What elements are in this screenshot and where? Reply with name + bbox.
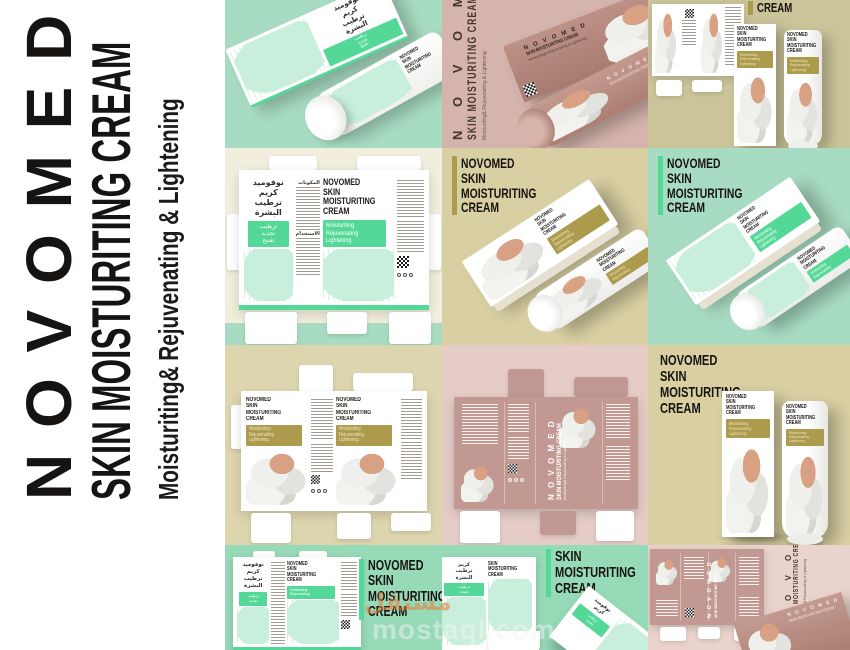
fine-print-text [401, 399, 422, 439]
dieline-flap [540, 511, 576, 535]
box-mockup-standing: NOVOMED SKIN MOISTURITING CREAM Moisturi… [734, 24, 776, 146]
benefits-badge: Moisturiting Rejuvenating Lightening [323, 220, 386, 247]
dieline-flap [299, 365, 333, 393]
fine-print-text [606, 404, 630, 440]
dieline-flap [508, 369, 544, 399]
dieline-flap [596, 511, 634, 541]
fine-print-text [397, 221, 424, 253]
tile-khaki-box-tube: NOVOMED SKIN MOISTURITING CREAM NOVOMED … [442, 148, 648, 345]
photo-woman [655, 7, 677, 73]
fine-print-text [311, 444, 332, 472]
tagline-text: Moisturiting& Rejuvenating & Lightening [153, 130, 185, 500]
illustration-woman [244, 249, 293, 301]
dieline-body: NOVOMED SKIN MOISTURITING CREAM Moisturi… [241, 391, 427, 511]
vertical-brand-line: N O V O M E D [450, 0, 465, 140]
dieline-flap [389, 312, 431, 344]
qr-code-icon [685, 9, 694, 18]
benefits-badge: Moisturiting Rejuvenating [287, 586, 336, 600]
dieline-flap [327, 312, 367, 334]
box-title: NOVOMED SKIN MOISTURITING CREAM [323, 178, 394, 217]
box-title: NOVOMED SKIN MOISTURITING CREAM [336, 397, 398, 423]
dieline-flap [269, 156, 317, 170]
rotated-brand-text: N O V O M E D SKIN MOISTURITING CREAM Mo… [547, 410, 567, 500]
front-panel: N O V O M E D SKIN MOISTURITING CREAM Mo… [535, 402, 599, 504]
photo-woman [787, 76, 819, 143]
box-title-line: CREAM [287, 578, 329, 583]
arabic-word: نوفوميد [244, 178, 293, 188]
heading-line: MOISTURITING [368, 590, 442, 605]
dieline-flap [692, 80, 722, 92]
box-title: SKIN MOISTURITING CREAM [488, 562, 532, 578]
social-icons [508, 478, 529, 482]
box-title-line: CREAM [737, 43, 766, 48]
fine-print-column [401, 397, 422, 505]
tube-title-line: CREAM [786, 421, 816, 426]
fine-print-column [341, 562, 357, 644]
arabic-word: كريم [244, 188, 293, 198]
rotated-brand-text: N O V O M E D SKIN MOISTURITING CREAM [707, 561, 718, 618]
rotated-product-line: SKIN MOISTURITING CREAM [713, 569, 718, 618]
benefits-badge: Moisturiting Rejuvenating Lightening [786, 429, 824, 446]
dieline-flap [660, 627, 686, 641]
benefit-word: Moisturiting [326, 222, 375, 230]
arabic-panel: كريم ترطيب البشرة ترطيب تجديد [442, 562, 486, 645]
heading-line: CREAM [461, 200, 536, 215]
arabic-word: البشرة [244, 208, 293, 218]
fine-print-column [397, 178, 424, 301]
qr-code-icon [397, 256, 409, 268]
side-panel [459, 402, 501, 504]
tile-khaki-standing-pack: NOVOMED SKIN MOISTURITING CREAM NOVOMED … [648, 345, 850, 545]
dieline-flap [391, 513, 431, 531]
qr-code-icon [522, 82, 538, 98]
arabic-word: كريم [237, 569, 269, 576]
benefits-badge: Moisturiting Rejuvenating Lightening [336, 425, 392, 446]
fine-print-column [504, 402, 532, 504]
photo-woman [737, 70, 773, 143]
box-title-line: CREAM [726, 411, 761, 416]
arabic-panel: نوفوميد كريم ترطيب البشرة ترطيب تجديد [237, 562, 269, 644]
arabic-panel: نوفوميد كريم ترطيب البشرة ترطيب تجديد تف… [244, 178, 293, 301]
photo-woman [336, 448, 398, 505]
box-title: NOVOMED SKIN MOISTURITING CREAM [737, 27, 773, 49]
heading-accent-bar [359, 559, 364, 620]
dieline-flap [251, 513, 291, 543]
benefit-word: تجديد [251, 230, 286, 237]
fine-print-text [296, 187, 320, 231]
product-title: SKIN MOISTURITING CREAM [85, 200, 139, 500]
front-panel: N O V O M E D SKIN MOISTURITING CREAM [708, 553, 733, 621]
box-title-line: CREAM [323, 207, 380, 217]
dieline-flap [353, 373, 413, 391]
tube-mockup-standing: NOVOMED SKIN MOISTURITING CREAM Moisturi… [782, 401, 828, 539]
fine-print-text [606, 446, 630, 480]
heading-line: SKIN [660, 369, 741, 385]
benefits-badge-arabic: ترطيب تجديد [444, 583, 484, 597]
vertical-product-line: SKIN MOISTURITING CREAM [465, 39, 479, 140]
illustration-woman [323, 249, 394, 301]
dieline-unfolded: نوفوميد كريم ترطيب البشرة ترطيب تجديد تف… [239, 154, 429, 340]
benefit-word: تجديد [447, 590, 481, 595]
tile-heading: SKIN MOISTURITING CREAM [546, 549, 648, 597]
dieline-flap [698, 627, 720, 639]
benefits-badge: Moisturiting Rejuvenating Lightening [246, 425, 302, 446]
rotated-title-block: N O V O M E D SKIN MOISTURITING CREAM Mo… [0, 0, 225, 650]
benefits-badge: Moisturiting Rejuvenating Lightening [726, 419, 770, 439]
left-title-panel: N O V O M E D SKIN MOISTURITING CREAM Mo… [0, 0, 225, 650]
benefit-word: Rejuvenating [290, 592, 326, 597]
dieline-unfolded: نوفوميد كريم ترطيب البشرة ترطيب تجديد NO… [233, 557, 361, 650]
fine-print-column [602, 402, 633, 504]
vertical-tagline: Moisturiting& Rejuvenating & Lightening [482, 0, 488, 140]
fine-print-text [508, 404, 529, 434]
benefits-badge-arabic: ترطيب تجديد [239, 592, 267, 606]
heading-line: CREAM [667, 200, 742, 215]
dieline-unfolded: NOVOMED SKIN MOISTURITING CREAM Moisturi… [241, 365, 427, 523]
qr-code-icon [685, 608, 694, 617]
dieline-flap [656, 80, 682, 96]
benefits-badge-arabic: ترطيب تجديد تفتيح [248, 221, 289, 247]
benefit-word: Lightening [790, 68, 812, 73]
social-icons [397, 273, 424, 277]
ingredients-header: المكونات [296, 180, 320, 187]
heading-line: CREAM [757, 1, 792, 15]
dieline-flap [428, 214, 441, 270]
heading-line: NOVOMED [667, 156, 742, 171]
qr-code-icon [341, 620, 350, 629]
dieline-unfolded-mauve: N O V O M E D SKIN MOISTURITING CREAM Mo… [454, 369, 638, 521]
tile-green-box-tube: نوفوميد كريم ترطيب البشرة ترطيب تجديد تف… [225, 0, 442, 148]
heading-line: MOISTURITING [555, 565, 636, 581]
tile-heading: CREAM [748, 1, 805, 15]
dieline-flap [460, 511, 500, 543]
tube-title: NOVOMED SKIN MOISTURITING CREAM [786, 405, 824, 427]
tile-pink-box-tube: N O V O M E D SKIN MOISTURITING CREAM Mo… [442, 0, 648, 148]
benefit-word: تفتيح [251, 237, 286, 244]
fine-print-text [296, 238, 320, 276]
rotated-product-line: SKIN MOISTURITING CREAM [556, 423, 563, 500]
arabic-word: البشرة [442, 575, 486, 581]
front-panel: NOVOMED SKIN MOISTURITING CREAM Moisturi… [336, 397, 398, 505]
illustration-woman [488, 579, 532, 634]
tube-mockup-standing: NOVOMED SKIN MOISTURITING CREAM Moisturi… [784, 30, 822, 146]
side-panel [654, 553, 678, 621]
benefit-word: Lightening [339, 438, 382, 444]
usage-header: الاستخدام [296, 231, 320, 238]
box-title: N O V O M E D SKIN MOISTURITING CREAM [787, 597, 850, 650]
heading-line: NOVOMED [660, 353, 741, 369]
arabic-word: ترطيب [237, 576, 269, 583]
dieline-flap [245, 312, 297, 344]
tile-khaki-dieline: NOVOMED SKIN MOISTURITING CREAM Moisturi… [225, 345, 442, 545]
photo-woman [656, 557, 678, 585]
arabic-product-name: كريم ترطيب البشرة [442, 562, 486, 581]
heading-line: MOISTURITING [667, 186, 742, 201]
dieline-flap [337, 513, 371, 539]
fine-print-column [680, 553, 705, 621]
fine-print-text [508, 437, 529, 461]
tile-heading: NOVOMED SKIN MOISTURITING CREAM [359, 559, 442, 620]
heading-line: NOVOMED [461, 156, 536, 171]
heading-line: CREAM [368, 605, 442, 620]
tile-mint-box-tube: NOVOMED SKIN MOISTURITING CREAM NOVOMED … [648, 148, 850, 345]
dieline-flap [488, 631, 540, 650]
box-title: NOVOMED SKIN MOISTURITING CREAM [246, 397, 308, 423]
heading-line: NOVOMED [368, 559, 442, 574]
dieline-body: N O V O M E D SKIN MOISTURITING CREAM Mo… [454, 397, 638, 509]
benefit-word: ترطيب [251, 223, 286, 230]
fine-print-text [684, 557, 704, 581]
illustration-woman [229, 18, 327, 102]
heading-accent-bar [546, 549, 551, 597]
box-mockup-standing: NOVOMED SKIN MOISTURITING CREAM Moisturi… [722, 391, 774, 537]
fine-print-text [656, 600, 678, 618]
fine-print-text [739, 597, 759, 617]
tile-mint-dieline-box: كريم ترطيب البشرة ترطيب تجديد SKIN MOIST… [442, 545, 648, 650]
heading-accent-bar [452, 156, 457, 215]
arabic-product-name: نوفوميد كريم ترطيب البشرة [244, 178, 293, 218]
arabic-word: نوفوميد [237, 562, 269, 569]
heading-line: MOISTURITING [461, 186, 536, 201]
fine-print-text [271, 562, 284, 644]
tile-pink-mauve-dieline-box: N O V O M E D SKIN MOISTURITING CREAM N … [648, 545, 850, 650]
photo-woman [786, 448, 824, 535]
fine-print-column [311, 397, 332, 505]
fine-print-text [462, 404, 498, 444]
rotated-brand-line: N O V O M E D [547, 410, 556, 500]
fine-print-text [739, 557, 759, 587]
illustration-woman [237, 607, 269, 645]
brand-title: N O V O M E D [16, 0, 83, 500]
tile-tan-box-tube: CREAM NOVOMED SKIN MOISTURITING CREAM Mo… [648, 0, 850, 148]
illustration-woman [287, 600, 340, 644]
benefit-word: Lightening [789, 439, 816, 443]
arabic-word: البشرة [237, 583, 269, 590]
benefit-word: Rejuvenating [326, 230, 375, 238]
box-title: NOVOMED SKIN MOISTURITING CREAM [287, 562, 340, 584]
qr-code-icon [311, 475, 320, 484]
tile-rose-mauve-dieline: N O V O M E D SKIN MOISTURITING CREAM Mo… [442, 345, 648, 545]
heading-line: SKIN [555, 549, 636, 565]
benefit-word: Lightening [249, 438, 292, 444]
heading-accent-bar [748, 1, 753, 15]
packaging-design-board: N O V O M E D SKIN MOISTURITING CREAM Mo… [0, 0, 850, 650]
benefit-word: Lightening [326, 237, 375, 245]
heading-line: SKIN [667, 171, 742, 186]
fine-print-text [311, 399, 332, 441]
fine-print-text [341, 562, 357, 592]
photo-woman [246, 448, 308, 505]
benefits-badge: Moisturiting Rejuvenating Lightening [787, 57, 819, 75]
benefit-word: Lightening [740, 62, 766, 67]
tube-title: NOVOMED SKIN MOISTURITING CREAM [787, 33, 819, 55]
fine-print-text [401, 442, 422, 480]
tile-mint-dieline-heading: نوفوميد كريم ترطيب البشرة ترطيب تجديد NO… [225, 545, 442, 650]
tile-cream-dieline: نوفوميد كريم ترطيب البشرة ترطيب تجديد تف… [225, 148, 442, 345]
qr-code-icon [508, 464, 517, 473]
tube-title-line: CREAM [787, 49, 813, 54]
dieline-flap [574, 377, 628, 397]
dieline-flap [357, 156, 421, 170]
arabic-product-name: نوفوميد كريم ترطيب البشرة [237, 562, 269, 590]
fine-print-text [341, 594, 357, 618]
dieline-unfolded-mauve: N O V O M E D SKIN MOISTURITING CREAM [650, 549, 764, 625]
box-title: NOVOMED SKIN MOISTURITING CREAM [726, 395, 770, 417]
photo-woman [701, 7, 723, 73]
box-title-line: CREAM [488, 573, 523, 578]
benefits-badge: Moisturiting Rejuvenating Lightening [737, 51, 773, 69]
photo-woman [726, 440, 770, 533]
benefit-word: Lightening [729, 431, 761, 436]
fine-print-text [682, 20, 696, 46]
fine-print-text [397, 180, 424, 218]
front-panel: NOVOMED SKIN MOISTURITING CREAM Moisturi… [246, 397, 308, 505]
heading-line: SKIN [368, 574, 442, 589]
illustration-woman [442, 597, 486, 645]
fine-print-column [735, 553, 760, 621]
box-title-line: CREAM [336, 416, 386, 422]
heading-accent-bar [658, 156, 663, 215]
english-panel: NOVOMED SKIN MOISTURITING CREAM Moisturi… [287, 562, 340, 644]
dieline-body: نوفوميد كريم ترطيب البشرة ترطيب تجديد تف… [239, 170, 429, 310]
rotated-tagline: Moisturiting& Rejuvenating & Lightening [563, 410, 567, 500]
heading-line: SKIN [461, 171, 536, 186]
dieline-fragment [652, 4, 744, 76]
photo-woman [461, 462, 495, 502]
fine-print-column: المكونات الاستخدام [296, 178, 320, 301]
social-icons [311, 489, 332, 493]
benefit-word: تجديد [242, 599, 264, 604]
english-panel: NOVOMED SKIN MOISTURITING CREAM Moisturi… [323, 178, 394, 301]
box-title-line: CREAM [246, 416, 296, 422]
vertical-brand-text: N O V O M E D SKIN MOISTURITING CREAM Mo… [450, 0, 510, 148]
arabic-word: ترطيب [244, 198, 293, 208]
